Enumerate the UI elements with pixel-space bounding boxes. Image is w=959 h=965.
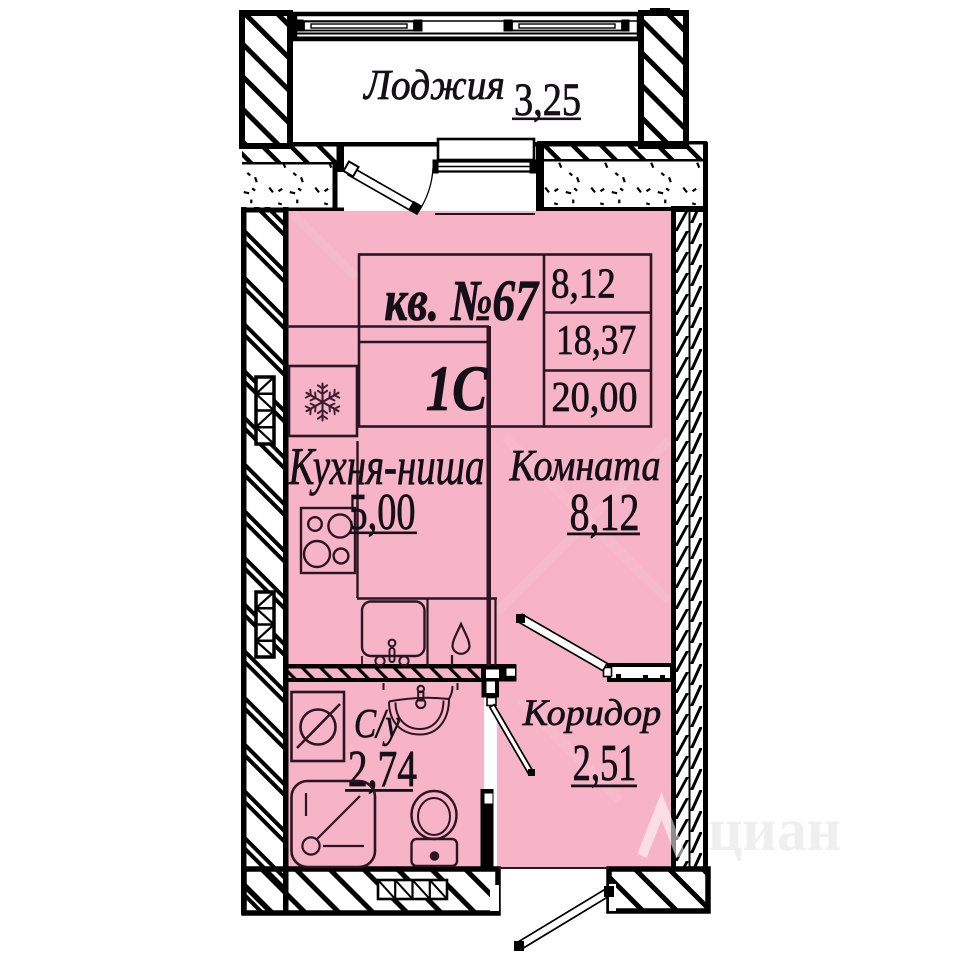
- svg-text:Комната: Комната: [509, 440, 661, 489]
- svg-text:2,74: 2,74: [348, 740, 417, 797]
- svg-text:2,51: 2,51: [573, 734, 637, 792]
- svg-text:8,12: 8,12: [551, 260, 616, 307]
- svg-text:20,00: 20,00: [552, 373, 638, 420]
- svg-text:18,37: 18,37: [556, 317, 636, 364]
- svg-text:циан: циан: [708, 796, 841, 864]
- svg-text:Лоджия: Лоджия: [362, 62, 505, 108]
- svg-text:1С: 1С: [426, 352, 488, 425]
- svg-text:Коридор: Коридор: [522, 693, 661, 733]
- svg-text:кв. №67: кв. №67: [384, 270, 539, 333]
